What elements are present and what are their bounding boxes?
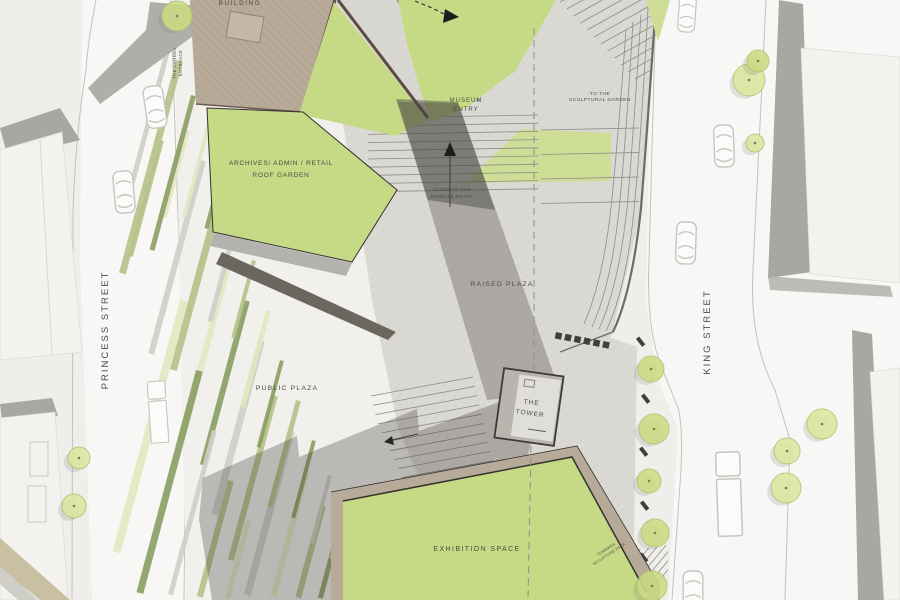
tree-trunk-dot: [73, 505, 76, 508]
car-icon: [677, 0, 696, 33]
public-plaza-label: PUBLIC PLAZA: [256, 385, 318, 392]
tree-trunk-dot: [648, 480, 651, 483]
bench-icon: [583, 337, 591, 345]
truck-icon: [716, 452, 743, 537]
bench-icon: [641, 394, 650, 404]
tower-building: THE TOWER: [494, 368, 563, 446]
truck-icon: [147, 381, 169, 444]
tree-trunk-dot: [748, 79, 751, 82]
bench-icon: [602, 341, 610, 349]
bench-icon: [574, 336, 582, 344]
sculptural-garden-label: SCULPTURAL GARDEN: [569, 97, 631, 103]
bench-icon: [639, 447, 648, 457]
bench-icon: [640, 501, 649, 511]
car-icon: [683, 571, 703, 600]
svg-text:THE GARDEN: THE GARDEN: [172, 47, 177, 78]
svg-text:ENTRANCE: ENTRANCE: [178, 50, 183, 76]
museum-entry-label: MUSEUM: [450, 98, 483, 104]
site-plan-drawing: THE TOWER BUILDING THE GARDEN ENTRANCE M…: [0, 0, 900, 600]
king-street-label: KING STREET: [702, 289, 713, 374]
tree-trunk-dot: [651, 585, 654, 588]
site-plan-page: THE TOWER BUILDING THE GARDEN ENTRANCE M…: [0, 0, 900, 600]
bench-icon: [636, 337, 645, 347]
tree-trunk-dot: [176, 15, 179, 18]
car-icon: [112, 170, 135, 214]
archives-roof-garden-label: ARCHIVES/ ADMIN / RETAIL: [229, 160, 333, 167]
exhibition-space-label: EXHIBITION SPACE: [433, 546, 520, 553]
bench-icon: [564, 334, 572, 342]
tree-trunk-dot: [653, 428, 656, 431]
bench-icon: [593, 339, 601, 347]
tree-trunk-dot: [650, 368, 653, 371]
rooflight: [226, 11, 264, 43]
bench-icon: [555, 332, 563, 340]
steps-museum-label: STEPS TO THE: [433, 187, 471, 192]
museum-entry-label: ENTRY: [453, 107, 478, 113]
garden-entrance-label: THE GARDEN ENTRANCE: [172, 47, 183, 78]
steps-museum-label: MUSEUM ENTRY: [431, 194, 473, 199]
tree-trunk-dot: [786, 450, 789, 453]
car-icon: [713, 125, 734, 168]
tree-trunk-dot: [821, 423, 824, 426]
raised-plaza-label: RAISED PLAZA: [470, 281, 533, 288]
princess-street-label: PRINCESS STREET: [100, 271, 111, 390]
tree-trunk-dot: [654, 532, 657, 535]
tree-trunk-dot: [785, 487, 788, 490]
sculptural-garden-label: TO THE: [590, 91, 610, 97]
building-label: BUILDING: [219, 0, 262, 7]
archives-roof-garden-label: ROOF GARDEN: [252, 172, 309, 179]
tree-trunk-dot: [757, 60, 760, 63]
tree-trunk-dot: [754, 142, 757, 145]
tree-trunk-dot: [78, 457, 81, 460]
car-icon: [675, 222, 696, 265]
east-building-upper: [801, 48, 900, 283]
